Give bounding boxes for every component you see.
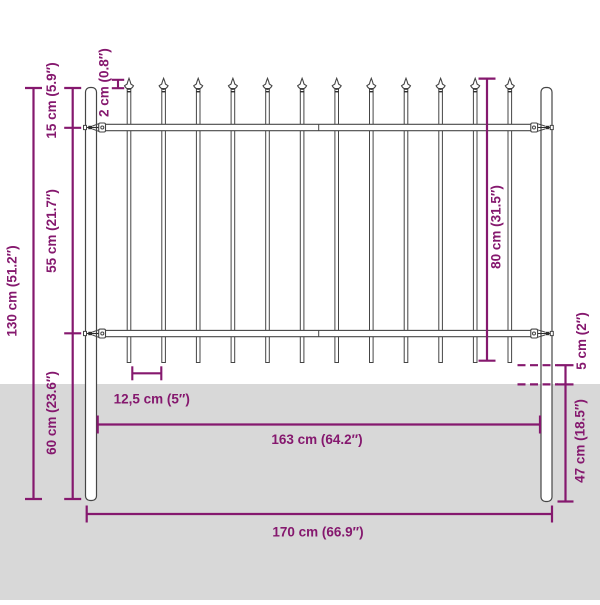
svg-text:60 cm (23.6″): 60 cm (23.6″) (44, 371, 59, 455)
svg-text:80 cm (31.5″): 80 cm (31.5″) (489, 185, 504, 269)
svg-text:55 cm (21.7″): 55 cm (21.7″) (44, 189, 59, 273)
svg-text:15 cm (5.9″): 15 cm (5.9″) (44, 62, 59, 138)
svg-text:5 cm (2″): 5 cm (2″) (574, 312, 589, 370)
svg-text:12,5 cm (5″): 12,5 cm (5″) (114, 391, 190, 406)
svg-text:2 cm (0.8″): 2 cm (0.8″) (96, 48, 111, 117)
svg-text:170 cm (66.9″): 170 cm (66.9″) (272, 524, 363, 539)
svg-text:47 cm (18.5″): 47 cm (18.5″) (573, 399, 588, 483)
svg-text:163 cm (64.2″): 163 cm (64.2″) (271, 432, 362, 447)
svg-text:130 cm (51.2″): 130 cm (51.2″) (5, 245, 20, 336)
